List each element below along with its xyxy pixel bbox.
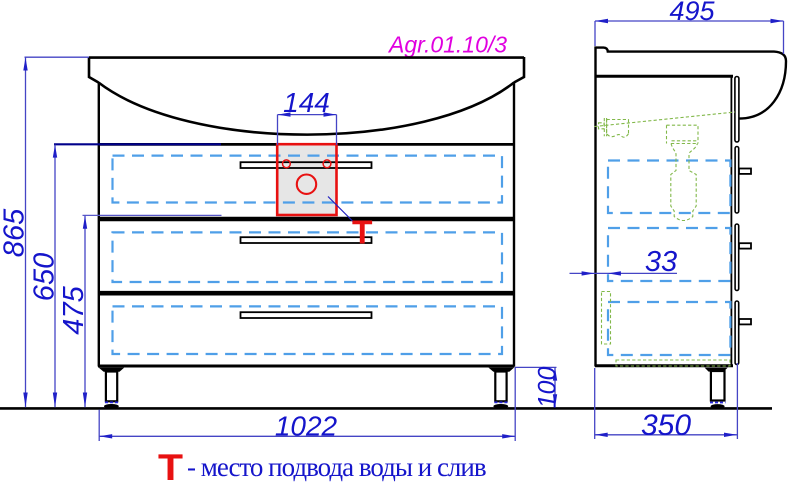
svg-text:650: 650	[29, 253, 61, 301]
svg-text:T: T	[158, 447, 183, 487]
svg-text:475: 475	[58, 285, 90, 334]
svg-text:Agr.01.10/3: Agr.01.10/3	[387, 32, 507, 58]
svg-text:1022: 1022	[275, 411, 338, 442]
svg-text:865: 865	[0, 208, 31, 257]
svg-text:350: 350	[641, 409, 691, 442]
svg-text:100: 100	[533, 367, 561, 409]
svg-text:33: 33	[645, 246, 677, 278]
svg-text:144: 144	[283, 87, 330, 118]
svg-text:495: 495	[669, 0, 715, 26]
svg-text:T: T	[352, 214, 373, 251]
svg-text:- место подвода воды и слив: - место подвода воды и слив	[187, 452, 486, 482]
